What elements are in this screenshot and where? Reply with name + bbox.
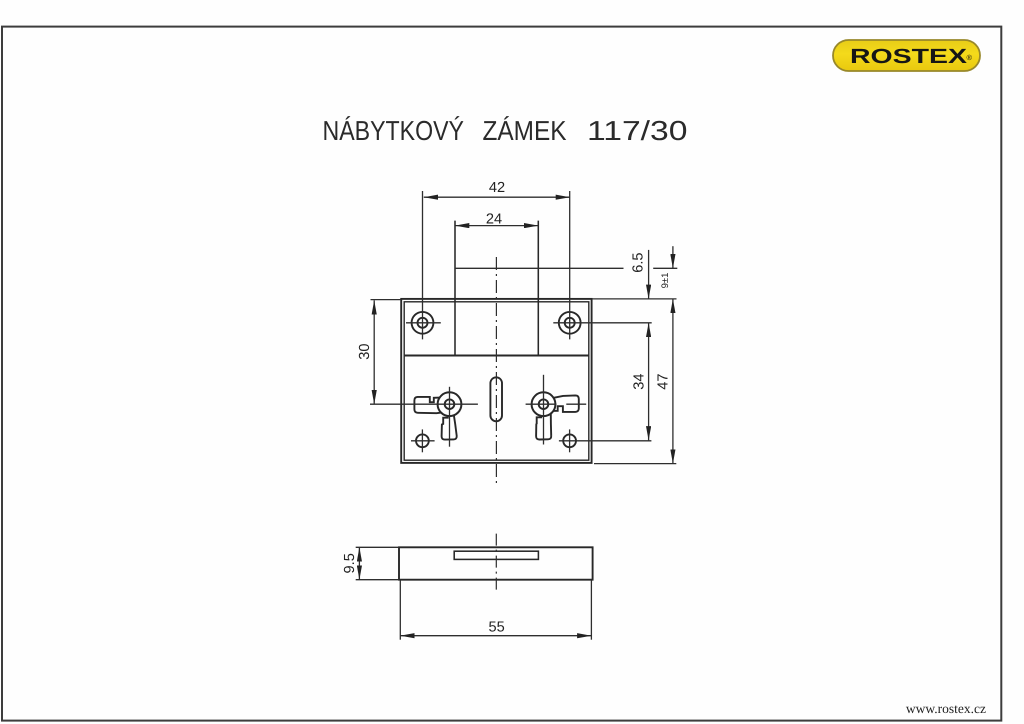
svg-text:www.rostex.cz: www.rostex.cz (906, 701, 986, 716)
svg-text:ROSTEX: ROSTEX (850, 45, 967, 68)
svg-text:34: 34 (632, 373, 648, 389)
svg-text:®: ® (967, 53, 973, 62)
svg-text:30: 30 (357, 343, 373, 359)
svg-text:ZÁMEK: ZÁMEK (483, 115, 568, 146)
svg-text:117/30: 117/30 (587, 115, 688, 146)
svg-text:6.5: 6.5 (630, 252, 646, 272)
svg-text:42: 42 (489, 180, 505, 196)
svg-text:24: 24 (486, 212, 502, 228)
svg-text:9±1: 9±1 (660, 273, 671, 289)
svg-text:NÁBYTKOVÝ: NÁBYTKOVÝ (323, 115, 465, 146)
svg-text:47: 47 (655, 373, 671, 389)
svg-text:55: 55 (488, 619, 504, 635)
svg-text:9.5: 9.5 (342, 553, 358, 573)
